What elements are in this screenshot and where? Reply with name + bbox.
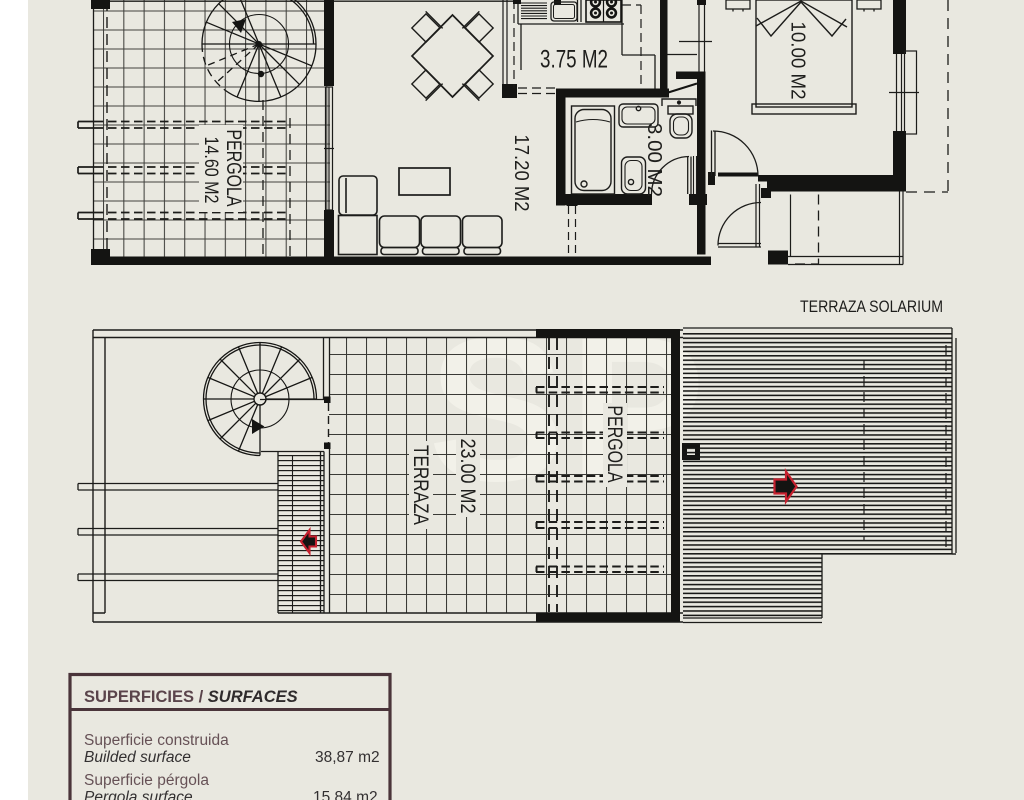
svg-text:10.00 M2: 10.00 M2 [787, 22, 809, 100]
svg-text:23.00 M2: 23.00 M2 [456, 439, 479, 514]
svg-text:15,84 m2: 15,84 m2 [313, 789, 378, 800]
svg-text:Builded surface: Builded surface [84, 749, 191, 766]
svg-text:Superficie construida: Superficie construida [84, 732, 229, 749]
svg-text:PERGOLA: PERGOLA [603, 406, 626, 483]
svg-text:38,87 m2: 38,87 m2 [315, 749, 380, 766]
svg-text:3.75 M2: 3.75 M2 [540, 46, 608, 74]
svg-text:TERRAZA: TERRAZA [409, 445, 432, 525]
svg-text:17.20 M2: 17.20 M2 [510, 135, 532, 212]
svg-text:3.00 M2: 3.00 M2 [643, 123, 665, 197]
svg-text:Superficie pérgola: Superficie pérgola [84, 772, 209, 789]
svg-text:PERGOLA: PERGOLA [222, 130, 245, 207]
svg-text:SUPERFICIES / SURFACES: SUPERFICIES / SURFACES [84, 688, 298, 706]
svg-text:Pergola surface: Pergola surface [84, 789, 193, 800]
svg-text:14.60 M2: 14.60 M2 [200, 137, 221, 204]
svg-text:TERRAZA SOLARIUM: TERRAZA SOLARIUM [800, 297, 943, 316]
